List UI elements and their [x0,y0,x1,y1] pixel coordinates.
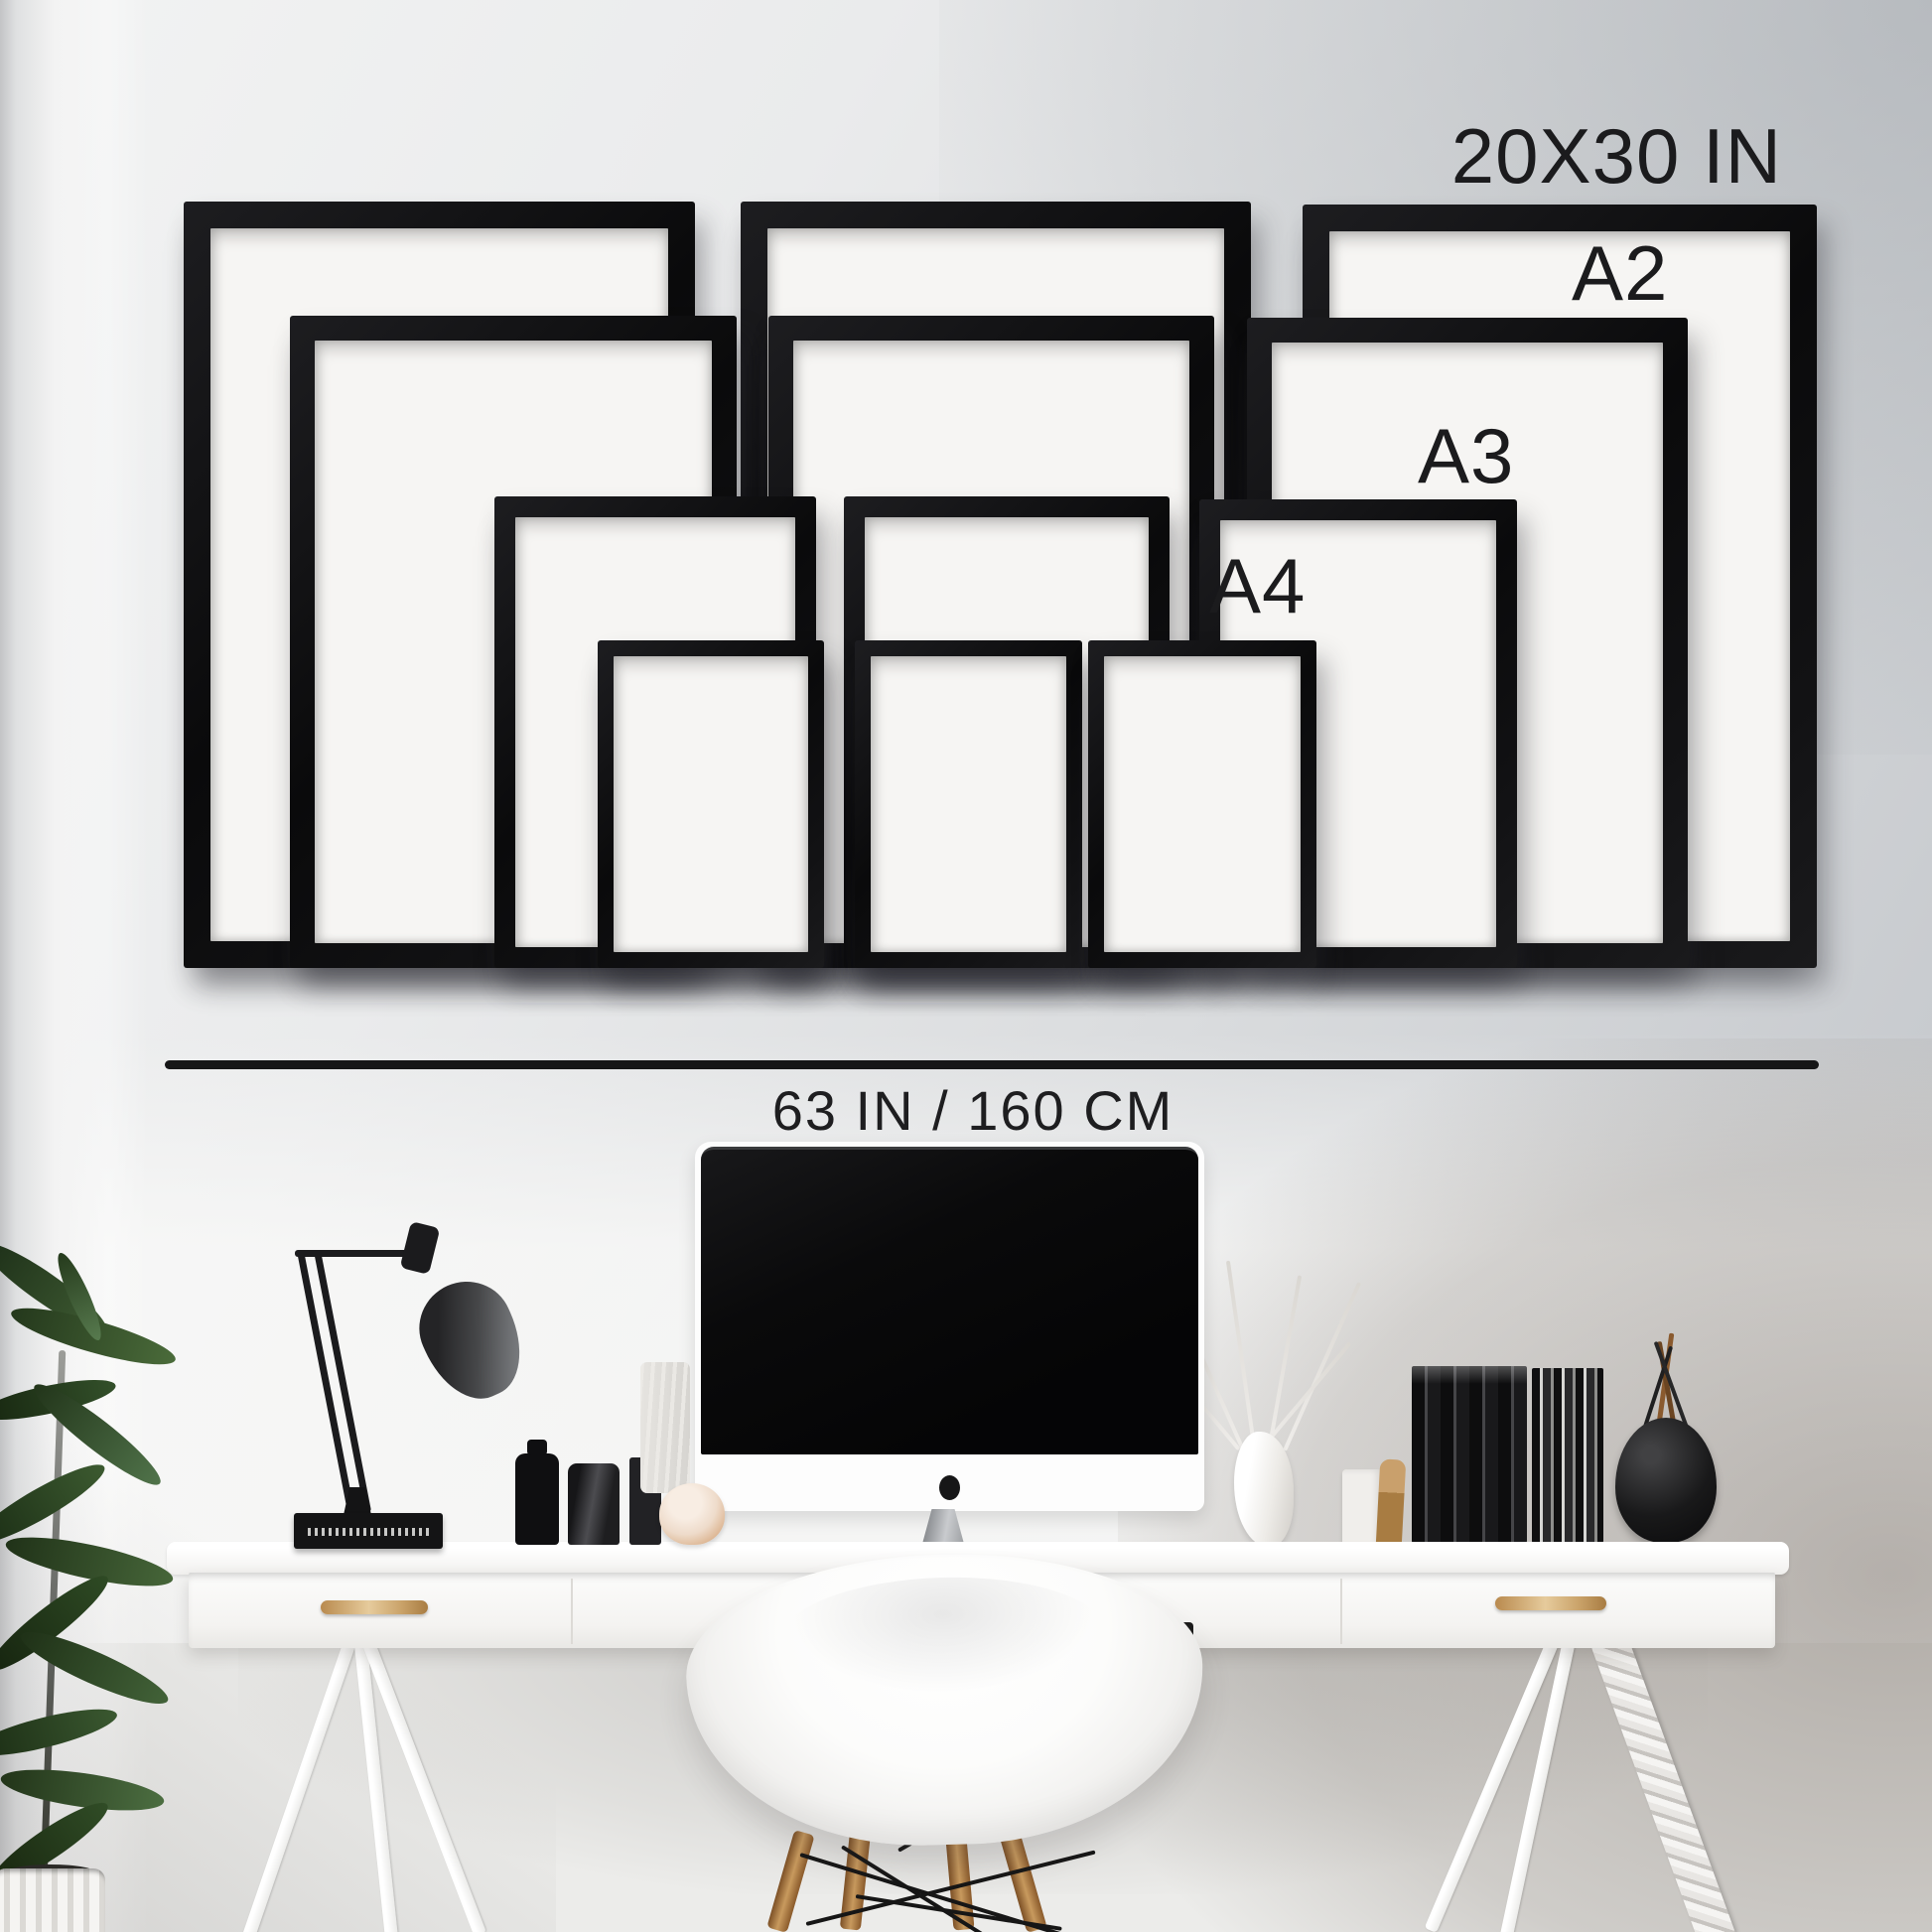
frame-size-mockup-photo: 20X30 IN A2 A3 A4 63 IN / 160 CM [0,0,1932,1932]
plant-leaf [14,1620,174,1715]
plant-pot [0,1868,105,1932]
plant-leaf [0,1700,120,1764]
potted-plant [0,0,1932,1932]
